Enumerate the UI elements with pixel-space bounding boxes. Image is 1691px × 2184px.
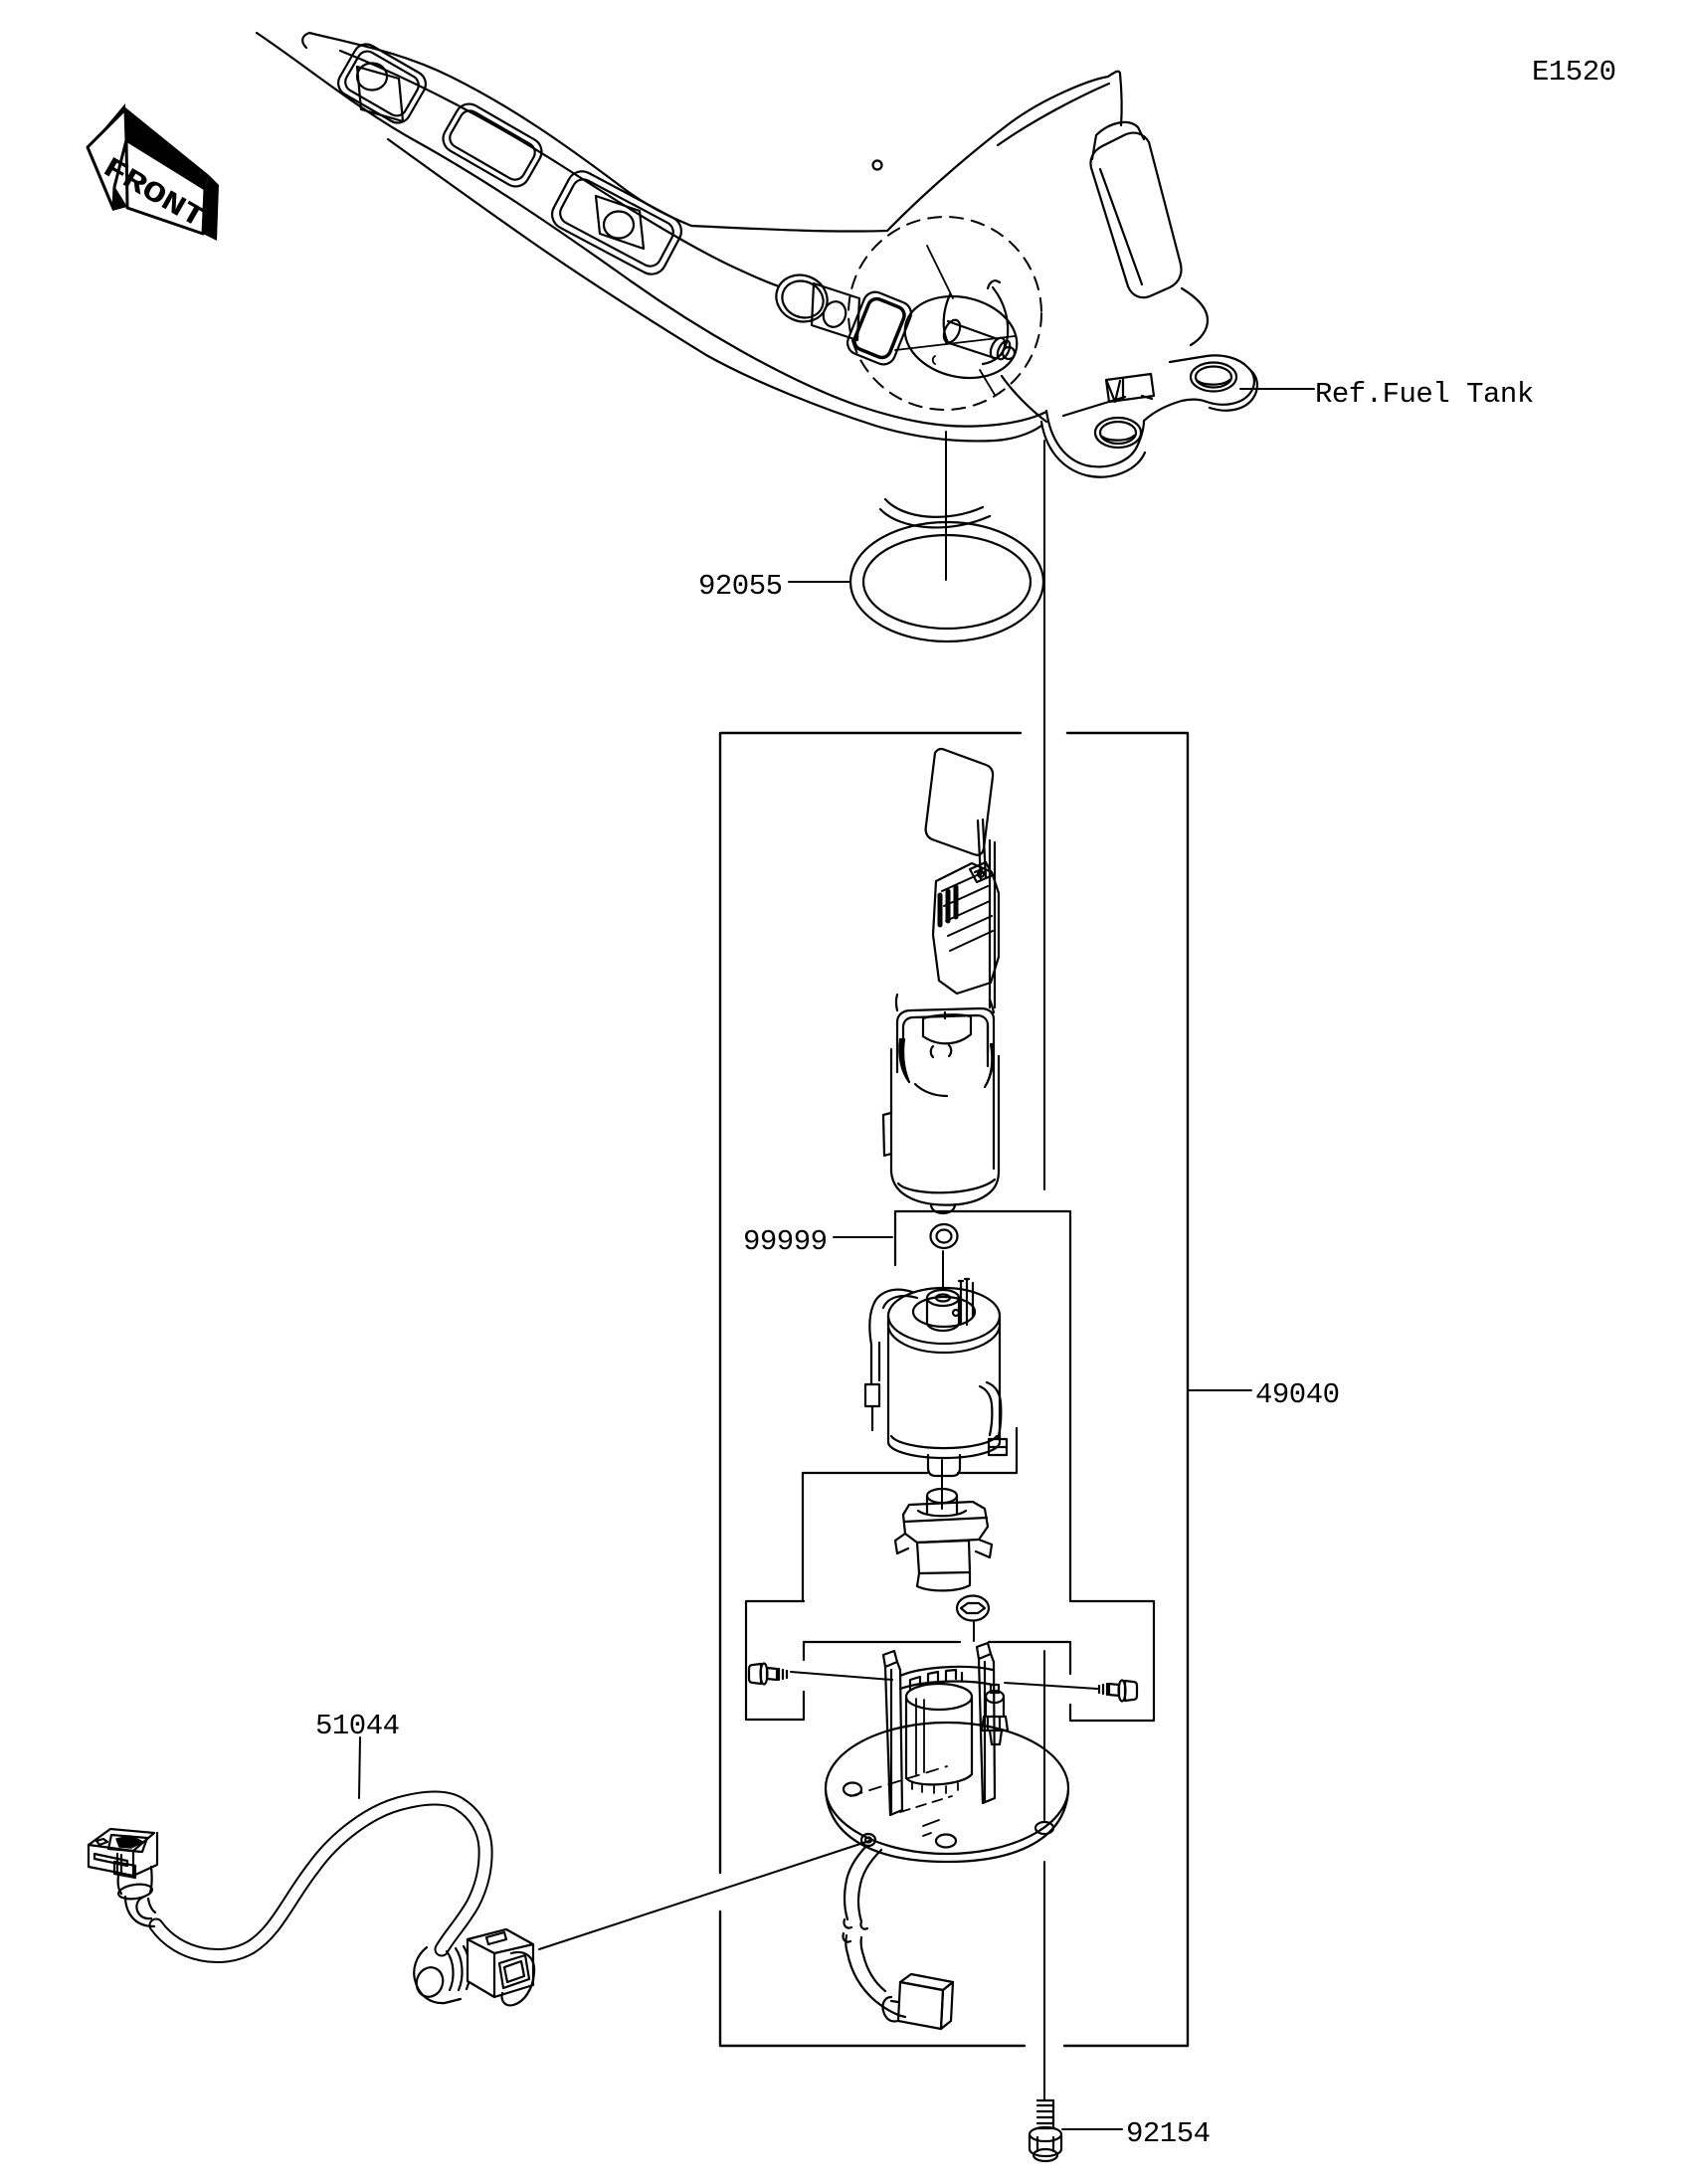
svg-text:92154: 92154 <box>1126 2117 1211 2150</box>
svg-text:E1520: E1520 <box>1532 56 1616 89</box>
svg-text:49040: 49040 <box>1255 1378 1340 1411</box>
svg-text:51044: 51044 <box>315 1710 400 1742</box>
svg-text:92055: 92055 <box>698 570 783 603</box>
svg-text:Ref.Fuel Tank: Ref.Fuel Tank <box>1315 378 1534 411</box>
svg-text:99999: 99999 <box>743 1225 828 1258</box>
